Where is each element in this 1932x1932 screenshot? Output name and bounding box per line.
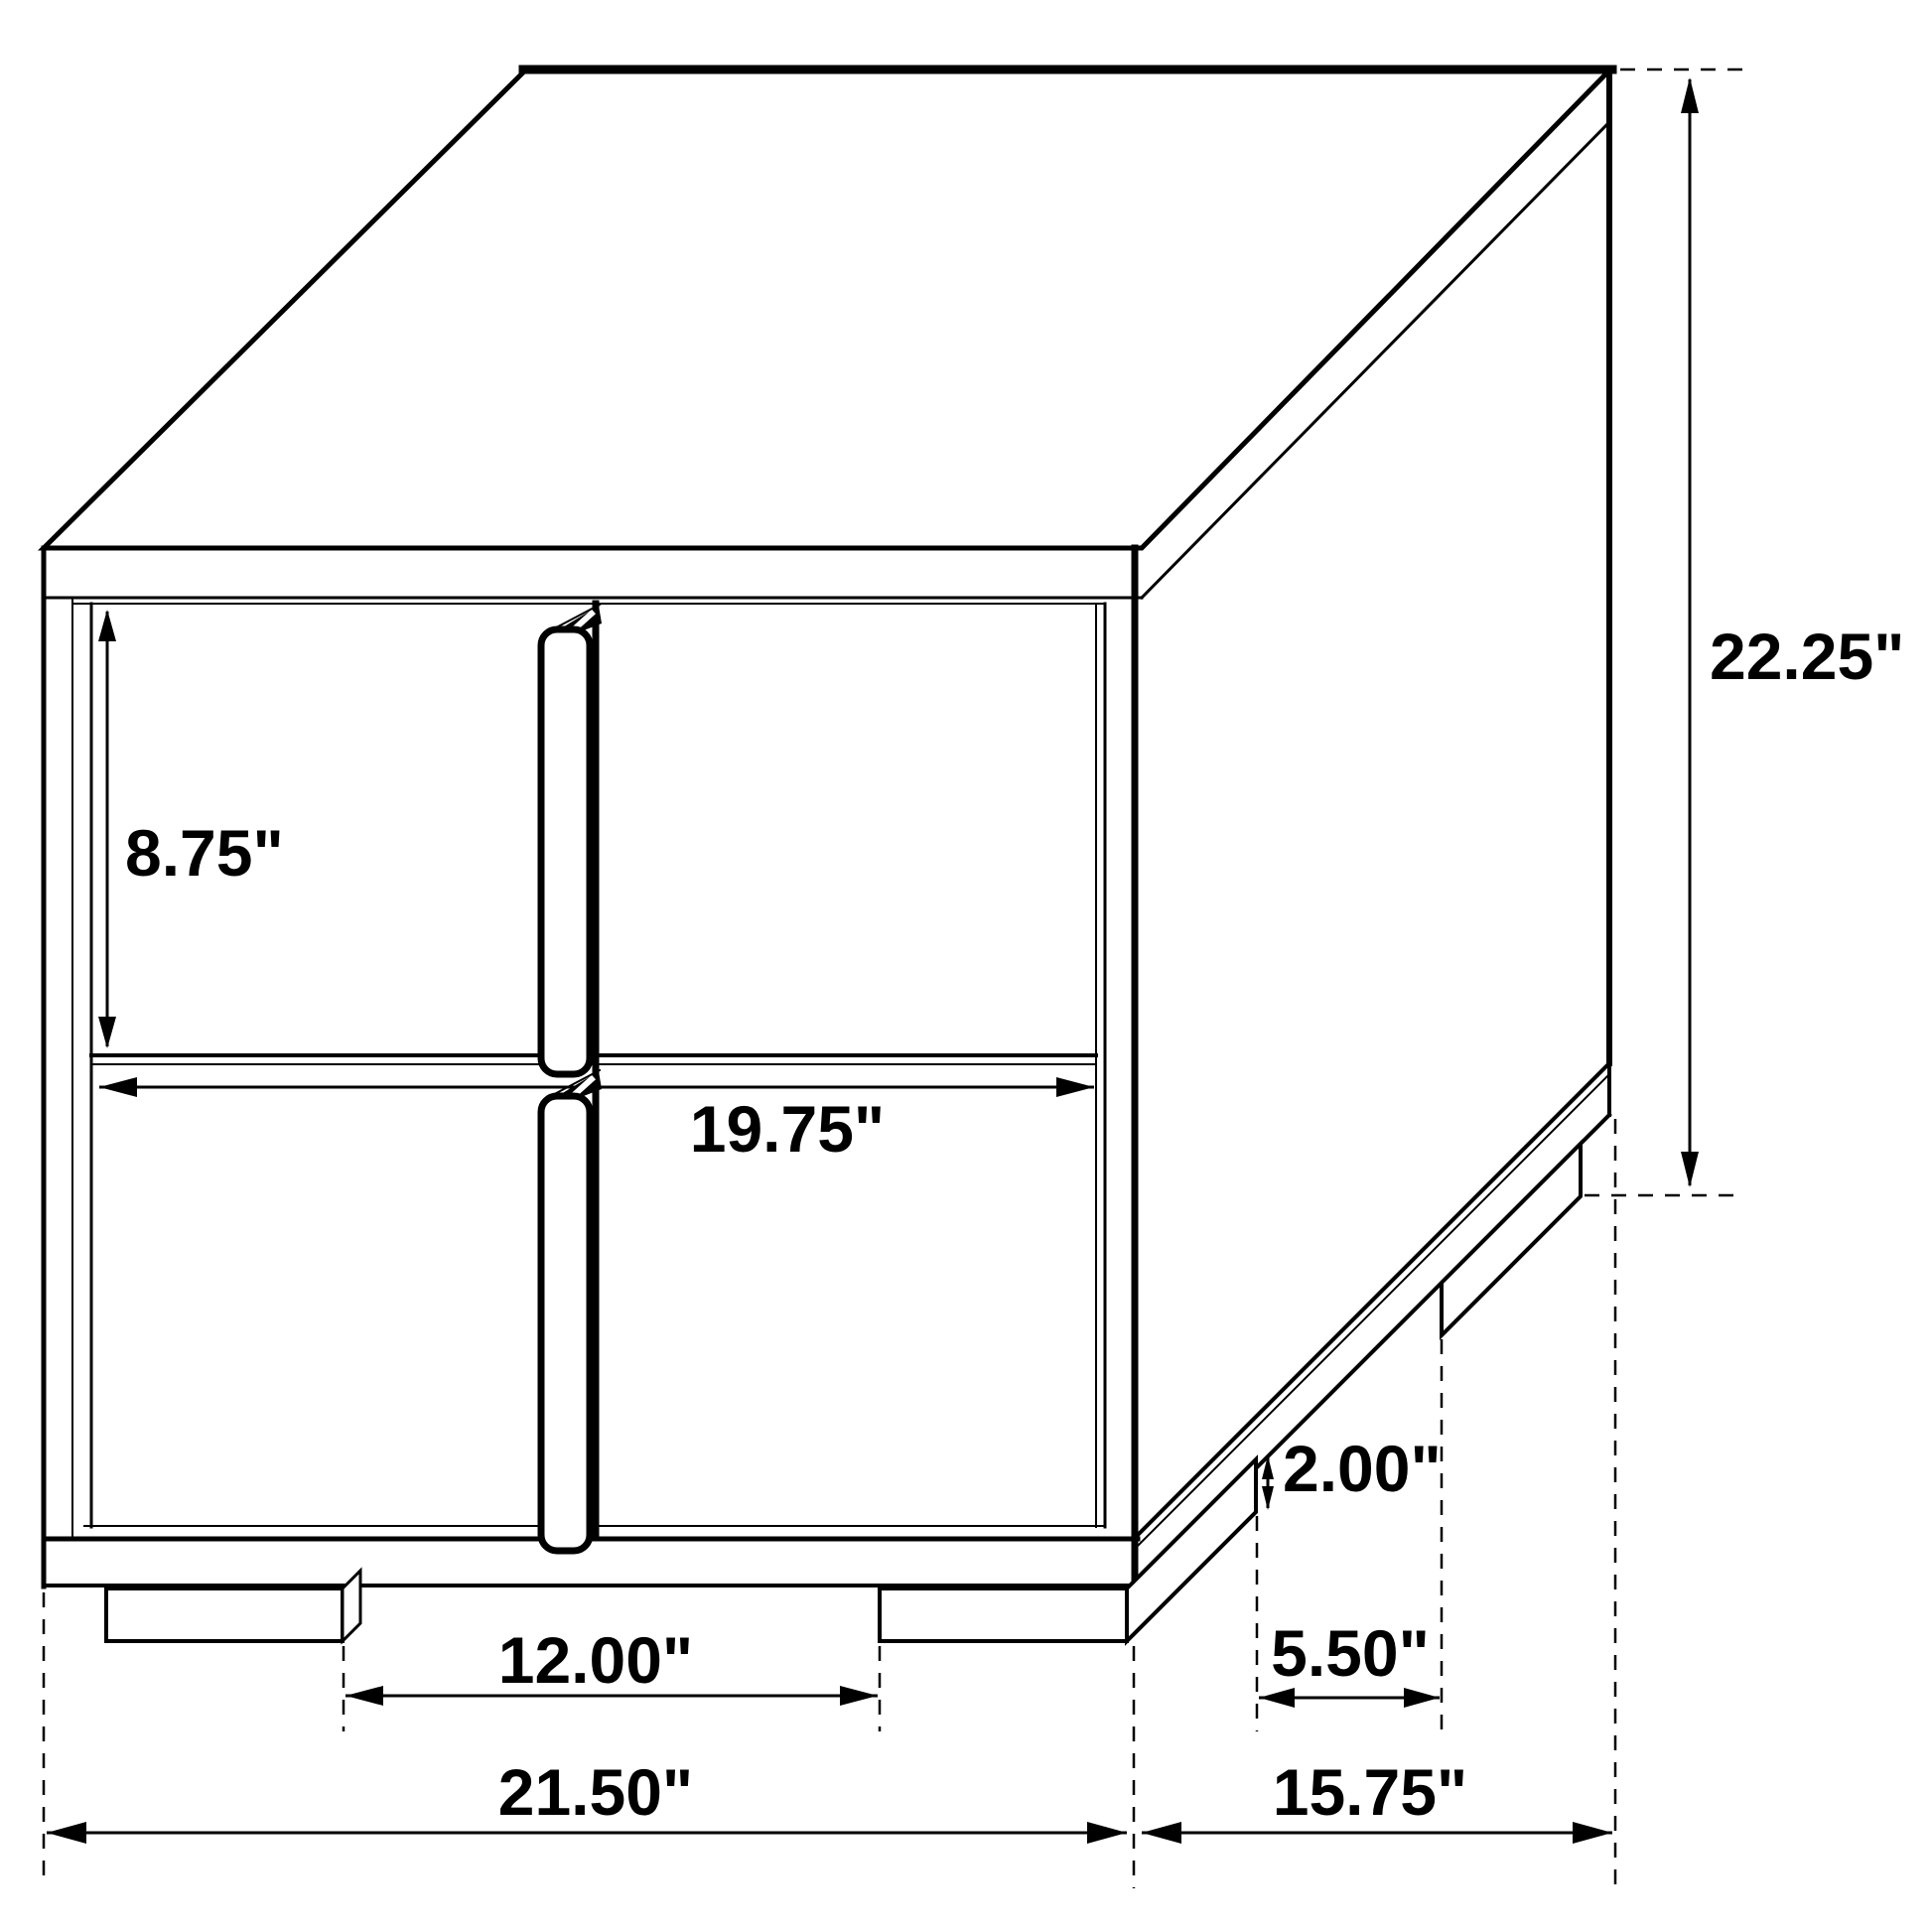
- front-right-foot: [880, 1588, 1127, 1641]
- arrowhead-left: [47, 1822, 86, 1844]
- lower-drawer-handle[interactable]: [541, 1070, 602, 1551]
- dimension-label: 5.50": [1271, 1616, 1430, 1690]
- dimension-label: 2.00": [1283, 1432, 1442, 1505]
- arrowhead-left: [99, 1077, 137, 1097]
- drawer-handles: [541, 605, 602, 1551]
- feet: [106, 1144, 1581, 1641]
- upper-drawer-handle[interactable]: [541, 605, 602, 1074]
- dimension-label: 21.50": [498, 1755, 693, 1829]
- dimension-label: 15.75": [1273, 1755, 1467, 1829]
- handle-bar: [541, 629, 590, 1074]
- dim-upper-drawer-height: 8.75": [98, 610, 284, 1048]
- arrowhead-right: [1573, 1822, 1612, 1844]
- arrowhead-right: [1087, 1822, 1127, 1844]
- dim-leg-height: 2.00": [1262, 1432, 1442, 1510]
- handle-bar: [541, 1096, 590, 1551]
- dimension-label-drawer-width: 19.75": [690, 1092, 885, 1166]
- arrowhead-up: [1681, 77, 1699, 113]
- dim-front-leg-spacing: 12.00": [344, 1623, 880, 1731]
- technical-drawing-canvas: 8.75" 19.75" 22.25" 2.00" 12.00": [0, 0, 1932, 1932]
- front-left-foot-side: [343, 1571, 360, 1641]
- arrowhead-right: [1056, 1077, 1094, 1097]
- dimension-label: 12.00": [498, 1623, 693, 1697]
- front-left-foot: [106, 1588, 343, 1641]
- top-panel: [44, 69, 1612, 604]
- arrowhead-left: [1142, 1822, 1181, 1844]
- top-surface: [44, 69, 1610, 548]
- arrowhead-left: [345, 1686, 383, 1706]
- arrowhead-down: [1681, 1152, 1699, 1187]
- front-right-foot-side: [1127, 1459, 1256, 1641]
- arrowhead-up: [98, 610, 116, 641]
- dimension-label: 8.75": [125, 816, 284, 890]
- arrowhead-right: [1404, 1688, 1440, 1708]
- dimension-label: 22.25": [1710, 620, 1904, 693]
- arrowhead-down: [98, 1017, 116, 1048]
- arrowhead-left: [1259, 1688, 1295, 1708]
- arrowhead-down: [1262, 1486, 1274, 1510]
- arrowhead-right: [840, 1686, 878, 1706]
- dim-overall-height: 22.25": [1585, 69, 1904, 1195]
- nightstand-dimension-diagram: 8.75" 19.75" 22.25" 2.00" 12.00": [0, 0, 1932, 1932]
